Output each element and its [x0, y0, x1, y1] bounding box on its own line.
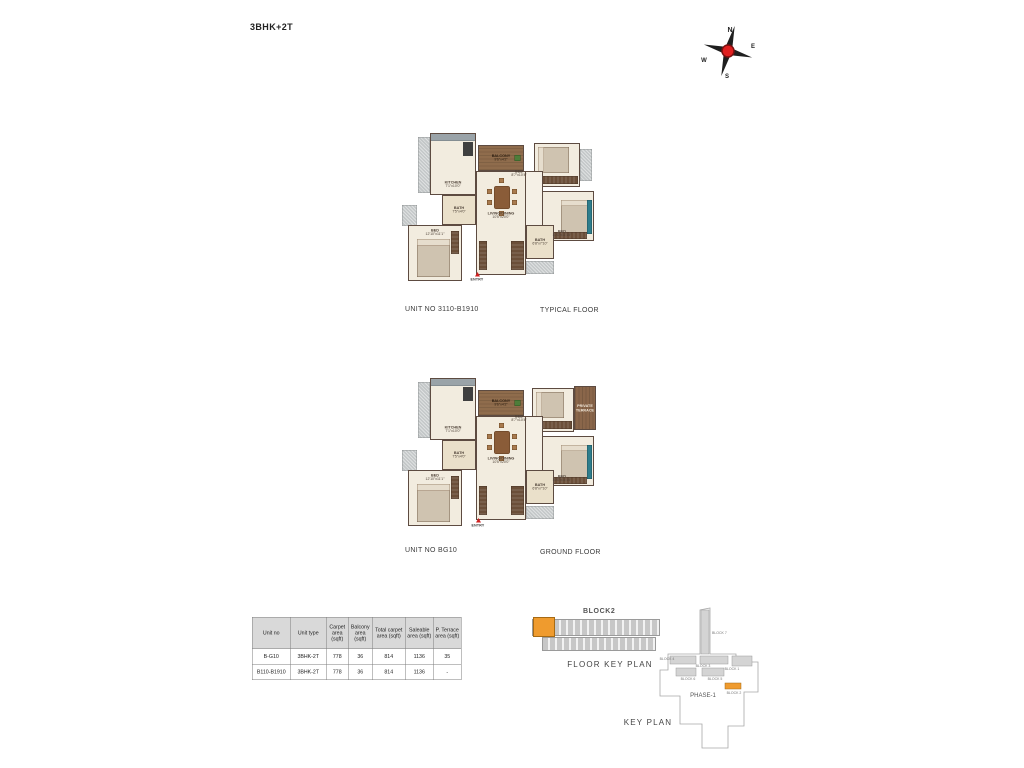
block-6-label: BLOCK 6 [681, 677, 696, 681]
living-dining-room: LIVING/DINING10'5"x20'0" [476, 416, 526, 520]
rear-ledge [526, 261, 554, 274]
mirror-wardrobe [587, 200, 592, 234]
chair [487, 445, 492, 450]
wardrobe [537, 176, 578, 184]
compass-rose-icon: N E W S [698, 20, 758, 80]
tv-cabinet [479, 241, 487, 270]
store-cabinet [511, 241, 524, 270]
floor-plan-ground: KITCHEN7'1"x10'0" BALCONY9'6"x4'2" PRIVA… [402, 372, 598, 530]
dining-table [494, 431, 510, 454]
cell: - [433, 664, 461, 680]
pillow [417, 484, 450, 491]
block-1-building [732, 656, 752, 666]
block-6-building [676, 668, 696, 676]
table-row: B-G10 3BHK-2T 778 36 814 1136 35 [252, 649, 461, 665]
bath-1-room: BATH7'5"x4'0" [442, 440, 476, 470]
compass-s-label: S [725, 74, 729, 80]
balcony-label: BALCONY9'6"x4'2" [492, 153, 511, 162]
entry-label: ENTRY [463, 524, 493, 528]
bath-2-label: BATH6'8"x7'10" [532, 482, 547, 491]
block-1-label: BLOCK 1 [725, 667, 740, 671]
kitchen-room: KITCHEN7'1"x10'0" [430, 133, 476, 195]
col-carpet-area: Carpet area (sqft) [326, 617, 348, 649]
floor-name-typical: TYPICAL FLOOR [540, 307, 599, 314]
col-terrace-area: P. Terrace area (sqft) [433, 617, 461, 649]
passage [525, 416, 543, 471]
bed-3-label: BED10'0"x11'10" [543, 474, 581, 483]
cell: 1136 [405, 664, 433, 680]
bed-3-label: BED10'0"x11'10" [543, 229, 581, 238]
cell: 1136 [405, 649, 433, 665]
col-total-carpet: Total carpet area (sqft) [372, 617, 405, 649]
compass-w-label: W [701, 58, 707, 64]
utility-ledge [418, 137, 430, 193]
bed-2-label: BED8'7"x10'4" [504, 414, 534, 423]
plant [515, 155, 521, 161]
chair [512, 189, 517, 194]
chair [487, 200, 492, 205]
block-5-label: BLOCK 5 [708, 677, 723, 681]
chair [487, 189, 492, 194]
brochure-page: 3BHK+2T N E W S KITCHEN7'1"x10'0" [0, 0, 1024, 768]
passage [525, 171, 543, 226]
table-header-row: Unit no Unit type Carpet area (sqft) Bal… [252, 617, 461, 649]
entry-arrow-icon [475, 272, 480, 277]
cell: 36 [348, 664, 372, 680]
rear-ledge [526, 506, 554, 519]
pillow [538, 147, 544, 173]
floor-plan-typical: KITCHEN7'1"x10'0" BALCONY9'6"x4'2" [402, 127, 598, 285]
block-3-building [700, 656, 728, 664]
cell: 778 [326, 664, 348, 680]
compass-e-label: E [751, 44, 755, 50]
bedroom-1: BED12'10"x11'1" [408, 470, 462, 526]
refrigerator [463, 142, 473, 156]
page-title: 3BHK+2T [250, 22, 293, 32]
bed-1-label: BED12'10"x11'1" [426, 228, 445, 237]
cell: B-G10 [252, 649, 290, 665]
living-label: LIVING/DINING10'5"x20'0" [488, 211, 515, 220]
private-terrace: PRIVATE TERRACE [574, 386, 596, 430]
bed-2-label: BED8'7"x10'4" [504, 169, 534, 178]
phase-label: PHASE-1 [690, 693, 716, 699]
chair [512, 445, 517, 450]
kitchen-label: KITCHEN7'1"x10'0" [445, 425, 462, 434]
side-ledge [402, 450, 417, 471]
chair [499, 178, 504, 183]
col-saleable-area: Saleable area (sqft) [405, 617, 433, 649]
side-ledge [402, 205, 417, 226]
wardrobe [451, 231, 459, 254]
terrace-label: PRIVATE TERRACE [576, 403, 595, 412]
area-table-grid: Unit no Unit type Carpet area (sqft) Bal… [252, 617, 462, 680]
col-balcony-area: Balcony area (sqft) [348, 617, 372, 649]
cell: 36 [348, 649, 372, 665]
entry-arrow-icon [476, 518, 481, 523]
bath-1-room: BATH7'5"x4'0" [442, 195, 476, 225]
pillow [536, 392, 542, 418]
col-unit-type: Unit type [290, 617, 326, 649]
compass-n-label: N [727, 27, 732, 34]
block-2-highlighted [725, 683, 741, 689]
utility-ledge [418, 382, 430, 438]
dining-table [494, 186, 510, 209]
entry-label: ENTRY [462, 278, 492, 282]
cell: 814 [372, 664, 405, 680]
balcony-room: BALCONY9'6"x4'2" [478, 145, 524, 171]
mirror-wardrobe [587, 445, 592, 479]
block-7-building [701, 610, 709, 654]
area-table: Unit no Unit type Carpet area (sqft) Bal… [252, 617, 462, 680]
bedroom-3: BED10'0"x11'10" [542, 436, 594, 486]
refrigerator [463, 387, 473, 401]
cell: B110-B1910 [252, 664, 290, 680]
pillow [561, 200, 588, 206]
floor-key-plan-strip-lower [542, 637, 656, 651]
cell: 778 [326, 649, 348, 665]
chair [499, 423, 504, 428]
cell: 35 [433, 649, 461, 665]
unit-number-ground: UNIT NO BG10 [405, 547, 457, 554]
ac-ledge [580, 149, 592, 181]
plant [515, 400, 521, 406]
block-3-label: BLOCK 3 [696, 664, 711, 668]
chair [487, 434, 492, 439]
pillow [561, 445, 588, 451]
tv-cabinet [479, 486, 487, 515]
kitchen-counter [431, 134, 475, 141]
chair [512, 200, 517, 205]
store-cabinet [511, 486, 524, 515]
cell: 814 [372, 649, 405, 665]
key-plan-map: BLOCK 7 BLOCK 4 BLOCK 3 BLOCK 1 BLOCK 6 … [640, 598, 775, 750]
bedroom-1: BED12'10"x11'1" [408, 225, 462, 281]
highlighted-unit-marker [533, 617, 555, 637]
kitchen-counter [431, 379, 475, 386]
balcony-room: BALCONY9'6"x4'2" [478, 390, 524, 416]
floor-name-ground: GROUND FLOOR [540, 549, 601, 556]
block-4-label: BLOCK 4 [660, 657, 675, 661]
floor-key-plan-block-title: BLOCK2 [583, 608, 615, 615]
cell: 3BHK-2T [290, 649, 326, 665]
balcony-label: BALCONY9'6"x4'2" [492, 398, 511, 407]
living-label: LIVING/DINING10'5"x20'0" [488, 456, 515, 465]
chair [512, 434, 517, 439]
pillow [417, 239, 450, 246]
table-row: B110-B1910 3BHK-2T 778 36 814 1136 - [252, 664, 461, 680]
bedroom-3: BED10'0"x11'10" [542, 191, 594, 241]
key-plan-caption: KEY PLAN [613, 718, 683, 727]
bath-1-label: BATH7'5"x4'0" [452, 450, 465, 459]
cell: 3BHK-2T [290, 664, 326, 680]
unit-number-typical: UNIT NO 3110-B1910 [405, 306, 479, 313]
block-7-label: BLOCK 7 [712, 631, 727, 635]
wardrobe [451, 476, 459, 499]
living-dining-room: LIVING/DINING10'5"x20'0" [476, 171, 526, 275]
kitchen-room: KITCHEN7'1"x10'0" [430, 378, 476, 440]
block-2-label: BLOCK 2 [727, 691, 742, 695]
kitchen-label: KITCHEN7'1"x10'0" [445, 180, 462, 189]
bath-2-label: BATH6'8"x7'10" [532, 237, 547, 246]
bath-1-label: BATH7'5"x4'0" [452, 205, 465, 214]
bed-1-label: BED12'10"x11'1" [426, 473, 445, 482]
block-5-building [702, 668, 724, 676]
col-unit-no: Unit no [252, 617, 290, 649]
